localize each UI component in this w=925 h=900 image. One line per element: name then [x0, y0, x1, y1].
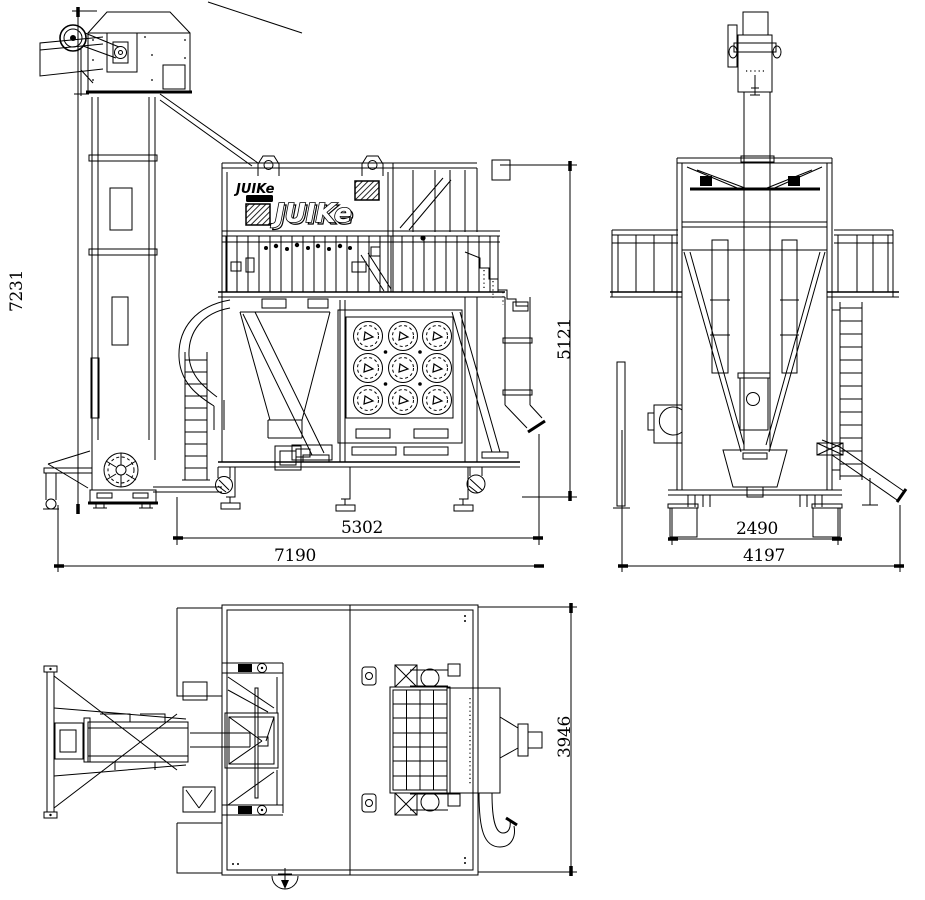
machine-drawing: JUIKe JUIKe JUIKe	[0, 0, 925, 900]
dim-text-top-depth: 3946	[555, 716, 575, 758]
dim-text-front-total-width: 7190	[274, 546, 316, 566]
dim-text-front-inner-width: 5302	[341, 518, 383, 538]
brand-logo-large: JUIKe	[270, 199, 352, 229]
brand-logo-small: JUIKe	[233, 182, 275, 197]
dim-text-side-total-width: 4197	[743, 546, 785, 566]
dim-text-front-body-height: 5121	[555, 318, 575, 360]
technical-drawing-canvas: JUIKe JUIKe JUIKe	[0, 0, 925, 900]
hatch-label-right	[355, 181, 379, 200]
dim-text-front-height: 7231	[7, 270, 27, 312]
hatch-label-left	[246, 204, 270, 225]
brand-sublabel-bar	[246, 195, 273, 202]
dim-text-side-inner-width: 2490	[736, 519, 778, 539]
